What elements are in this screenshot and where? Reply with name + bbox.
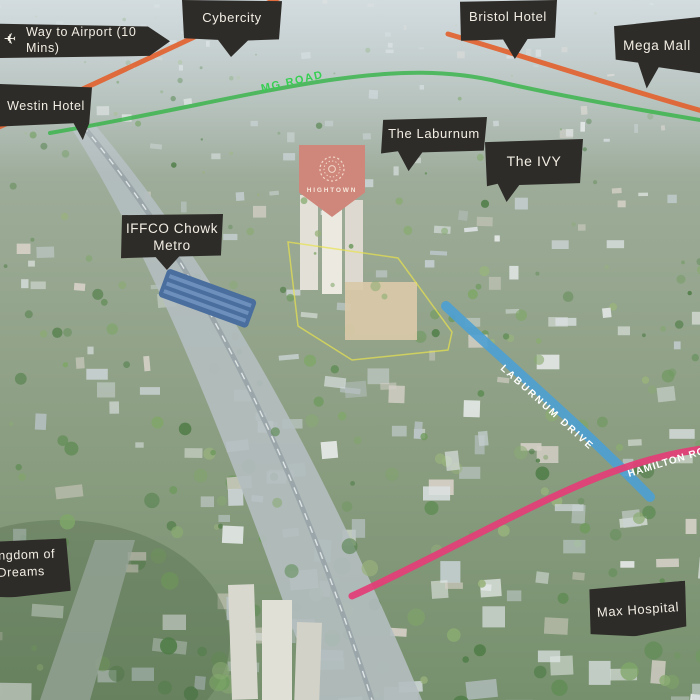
callout-label: Way to Airport (10 Mins) [26, 25, 170, 56]
brand-name: HIGHTOWN [299, 187, 365, 194]
callout-way-to-airport: ✈ Way to Airport (10 Mins) [0, 23, 170, 58]
aerial-location-map: MG ROAD LABURNUM DRIVE HAMILTON ROAD ✈ W… [0, 0, 700, 700]
callout-label: Cybercity [202, 10, 262, 25]
callout-label-line2: Metro [121, 237, 223, 254]
callout-label: The Laburnum [388, 126, 480, 141]
callout-label: The IVY [507, 153, 562, 169]
road-label-laburnum-drive: LABURNUM DRIVE [498, 363, 596, 453]
airplane-icon: ✈ [3, 31, 16, 50]
callout-label: Westin Hotel [7, 99, 85, 113]
callout-kingdom-of-dreams: Kingdom of Dreams [0, 538, 71, 598]
rosette-emblem-icon [299, 145, 365, 193]
callout-label: Bristol Hotel [469, 9, 547, 24]
callout-label: Mega Mall [623, 38, 691, 53]
callout-label-line1: IFFCO Chowk [121, 220, 223, 237]
callout-label-line2: Dreams [0, 562, 70, 582]
callout-label: Max Hospital [596, 599, 679, 621]
road-label-mg-road: MG ROAD [260, 69, 325, 95]
